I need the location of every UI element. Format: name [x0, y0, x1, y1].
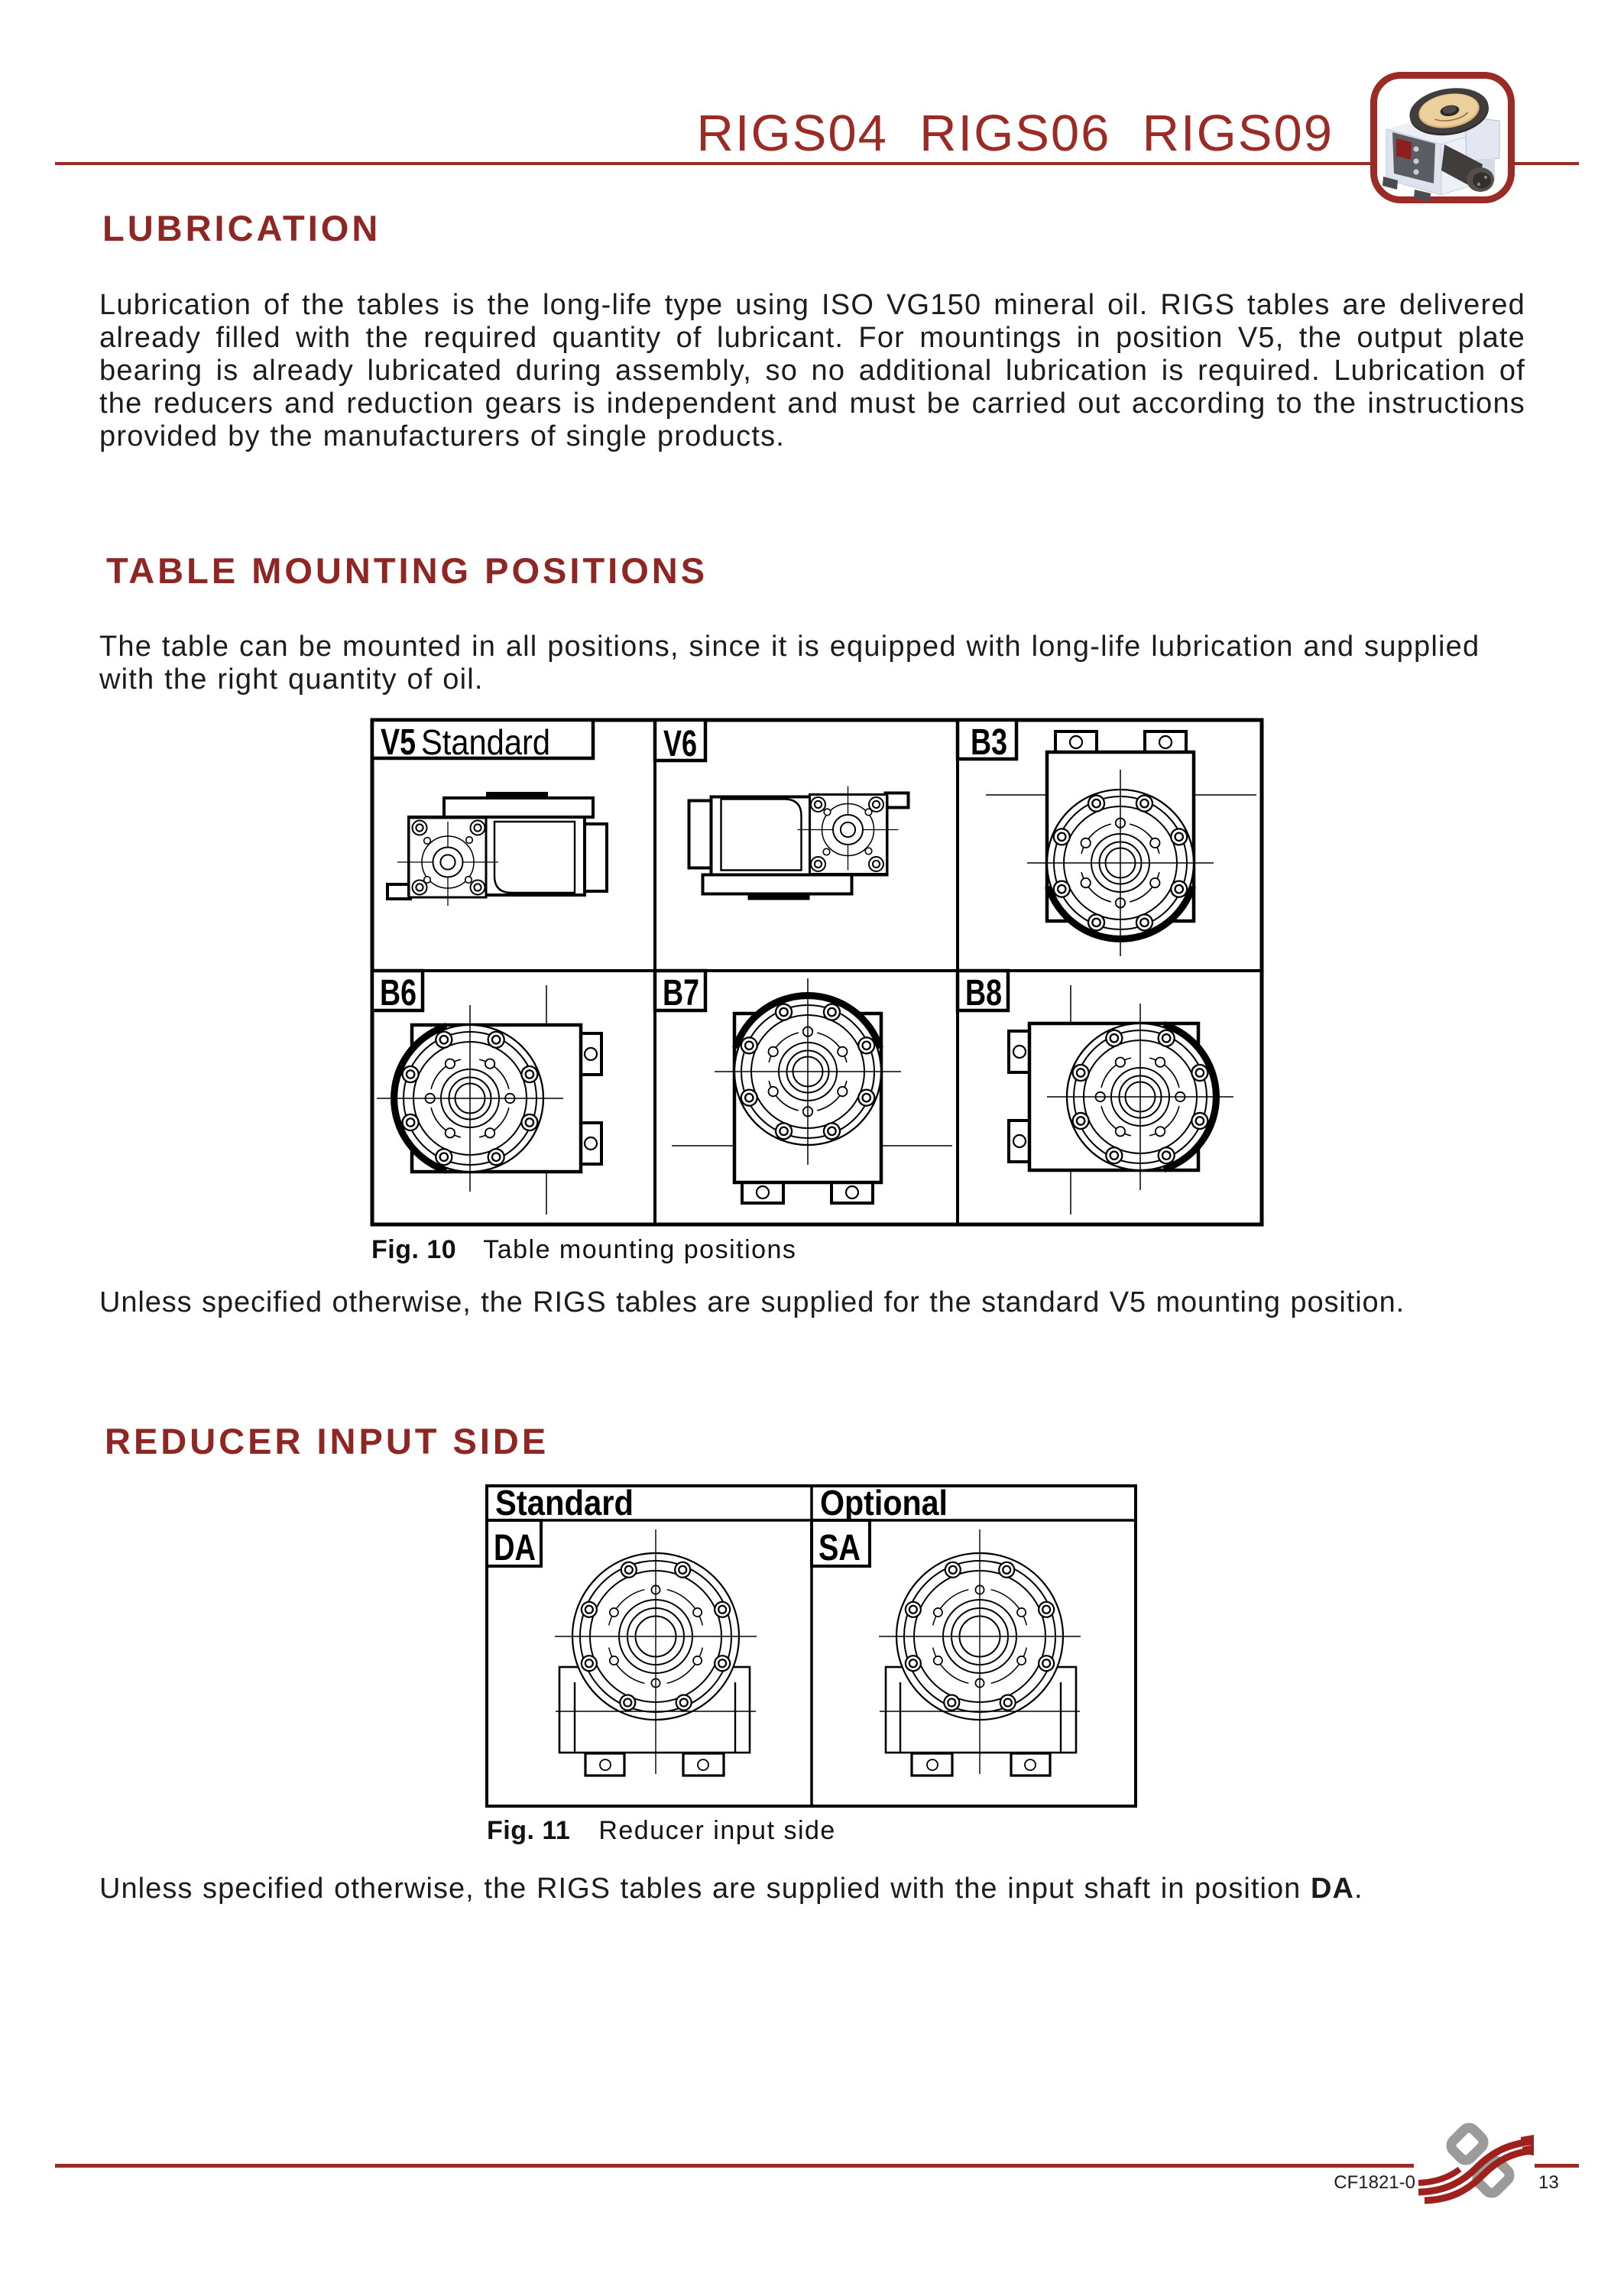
svg-text:B3: B3 — [971, 722, 1007, 763]
svg-text:Standard: Standard — [421, 722, 550, 762]
svg-text:DA: DA — [494, 1528, 536, 1568]
svg-text:B7: B7 — [663, 973, 699, 1014]
svg-text:V6: V6 — [663, 724, 697, 764]
svg-text:Optional: Optional — [820, 1484, 948, 1523]
svg-text:Standard: Standard — [495, 1484, 634, 1523]
svg-text:V5: V5 — [381, 722, 416, 763]
svg-text:B6: B6 — [380, 973, 417, 1014]
svg-text:B8: B8 — [965, 973, 1002, 1014]
svg-text:SA: SA — [818, 1528, 861, 1568]
